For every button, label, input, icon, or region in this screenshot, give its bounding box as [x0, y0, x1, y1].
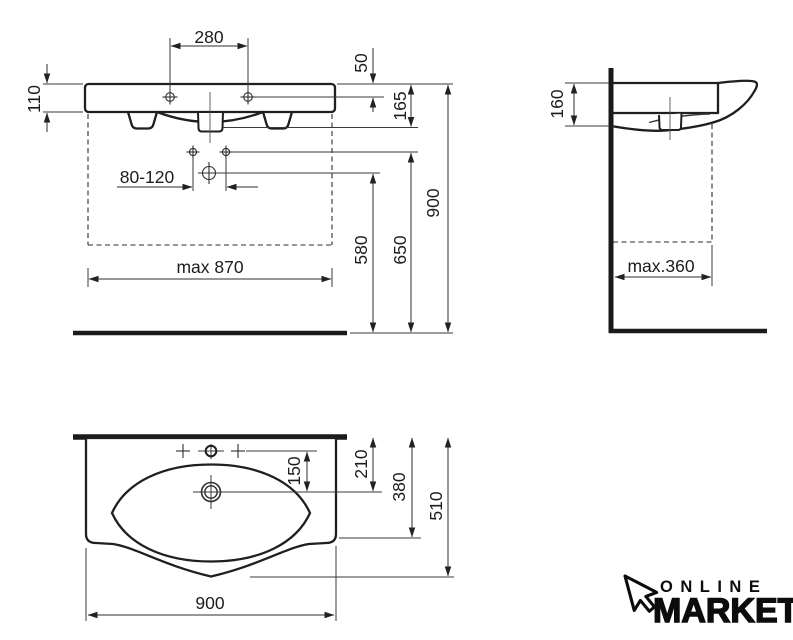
top-view: 150 210 380 510 900	[73, 437, 454, 621]
dim-510-label: 510	[426, 491, 446, 520]
dim-max870-label: max 870	[176, 257, 243, 277]
dim-max360-label: max.360	[627, 256, 694, 276]
dim-160-label: 160	[547, 89, 567, 118]
technical-drawing-page: 280 110 50 165 80-120 max 870 580 650 90…	[0, 0, 793, 640]
drain-outlet-front	[198, 112, 223, 132]
dim-210-label: 210	[351, 449, 371, 478]
dim-150-label: 150	[284, 456, 304, 485]
logo: ONLINE MARKET	[625, 569, 793, 630]
fixing-hole-marker	[187, 146, 200, 159]
logo-market-text: MARKET	[653, 592, 793, 630]
front-view: 280 110 50 165 80-120 max 870 580 650 90…	[24, 27, 453, 333]
basin-nose-profile	[713, 81, 757, 123]
dim-380-label: 380	[389, 472, 409, 501]
left-bracket	[128, 112, 157, 129]
dim-650-label: 650	[390, 235, 410, 264]
washbasin-drawing-canvas: 280 110 50 165 80-120 max 870 580 650 90…	[0, 0, 793, 640]
dim-580-label: 580	[351, 235, 371, 264]
dim-900-label: 900	[423, 188, 443, 217]
dim-50-label: 50	[351, 53, 371, 73]
dim-80-120-label: 80-120	[120, 167, 175, 187]
drain-pipe-marker	[198, 162, 220, 184]
right-bracket	[263, 112, 292, 129]
dim-280-label: 280	[194, 27, 223, 47]
fixing-hole-marker	[220, 146, 233, 159]
dim-165-label: 165	[390, 91, 410, 120]
dim-900-plan-label: 900	[195, 593, 224, 613]
side-view: 160 max.360	[547, 68, 767, 333]
dim-110-label: 110	[24, 85, 44, 113]
